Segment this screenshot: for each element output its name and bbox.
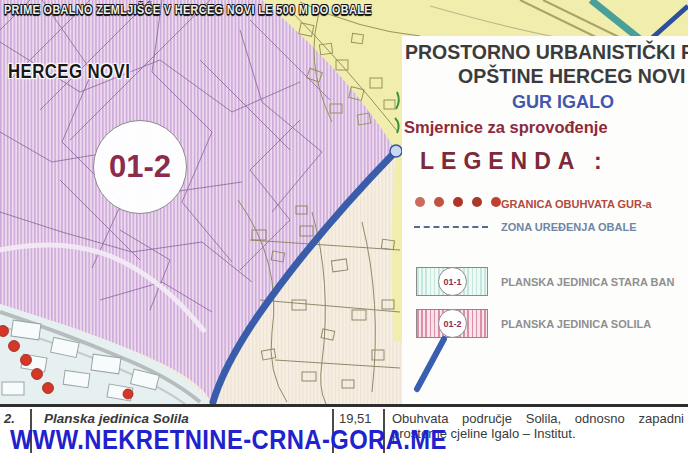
red-dot-icon xyxy=(491,197,501,207)
plan-title-line1: PROSTORNO URBANISTIČKI P xyxy=(405,41,688,64)
plan-table-row: 2. Planska jedinica Solila 19,51 Obuhvat… xyxy=(0,407,688,460)
agency-watermark-url: WWW.NEKRETNINE-CRNA-GORA.ME xyxy=(10,425,447,456)
legend-label-zona: ZONA UREĐENJA OBALE xyxy=(501,221,636,233)
legend-symbol-red-dots xyxy=(415,197,501,207)
area-value-cell: 19,51 xyxy=(339,411,372,426)
legend-label-granica: GRANICA OBUHVATA GUR-a xyxy=(501,198,652,210)
zone-01-2-label: 01-2 xyxy=(109,149,171,185)
legend-label-unit-01-2: PLANSKA JEDINICA SOLILA xyxy=(501,318,651,330)
unit-01-1-badge: 01-1 xyxy=(438,267,467,296)
unit-name-cell: Planska jedinica Solila xyxy=(44,411,189,426)
plan-name: GUR IGALO xyxy=(512,92,614,113)
legend-symbol-dashed-line xyxy=(414,226,488,228)
legend-label-unit-01-1: PLANSKA JEDINICA STARA BAN xyxy=(501,276,674,288)
plan-title-line2: OPŠTINE HERCEG NOVI xyxy=(458,65,686,88)
zone-01-2-marker: 01-2 xyxy=(93,120,187,214)
screenshot-root: 01-2 PRIME OBALNO ZEMLJIŠĆE V HERCEG NOV… xyxy=(0,0,688,460)
red-dot-icon xyxy=(472,197,482,207)
boundary-node-marker xyxy=(390,145,402,157)
city-label: HERCEG NOVI xyxy=(8,60,130,83)
boundary-line-fragment xyxy=(402,331,472,401)
legend-panel: PROSTORNO URBANISTIČKI P OPŠTINE HERCEG … xyxy=(402,36,688,405)
legend-title: LEGENDA : xyxy=(420,148,609,175)
red-dot-icon xyxy=(415,197,425,207)
row-number-cell: 2. xyxy=(4,411,15,426)
plan-subtitle: Smjernice za sprovođenje xyxy=(404,118,608,137)
legend-symbol-unit-01-1: 01-1 xyxy=(416,267,488,296)
red-dot-icon xyxy=(453,197,463,207)
listing-caption: PRIME OBALNO ZEMLJIŠĆE V HERCEG NOVI LE … xyxy=(4,2,372,17)
description-line1: Obuhvata područje Solila, odnosno zapadn… xyxy=(392,411,684,426)
red-dot-icon xyxy=(434,197,444,207)
